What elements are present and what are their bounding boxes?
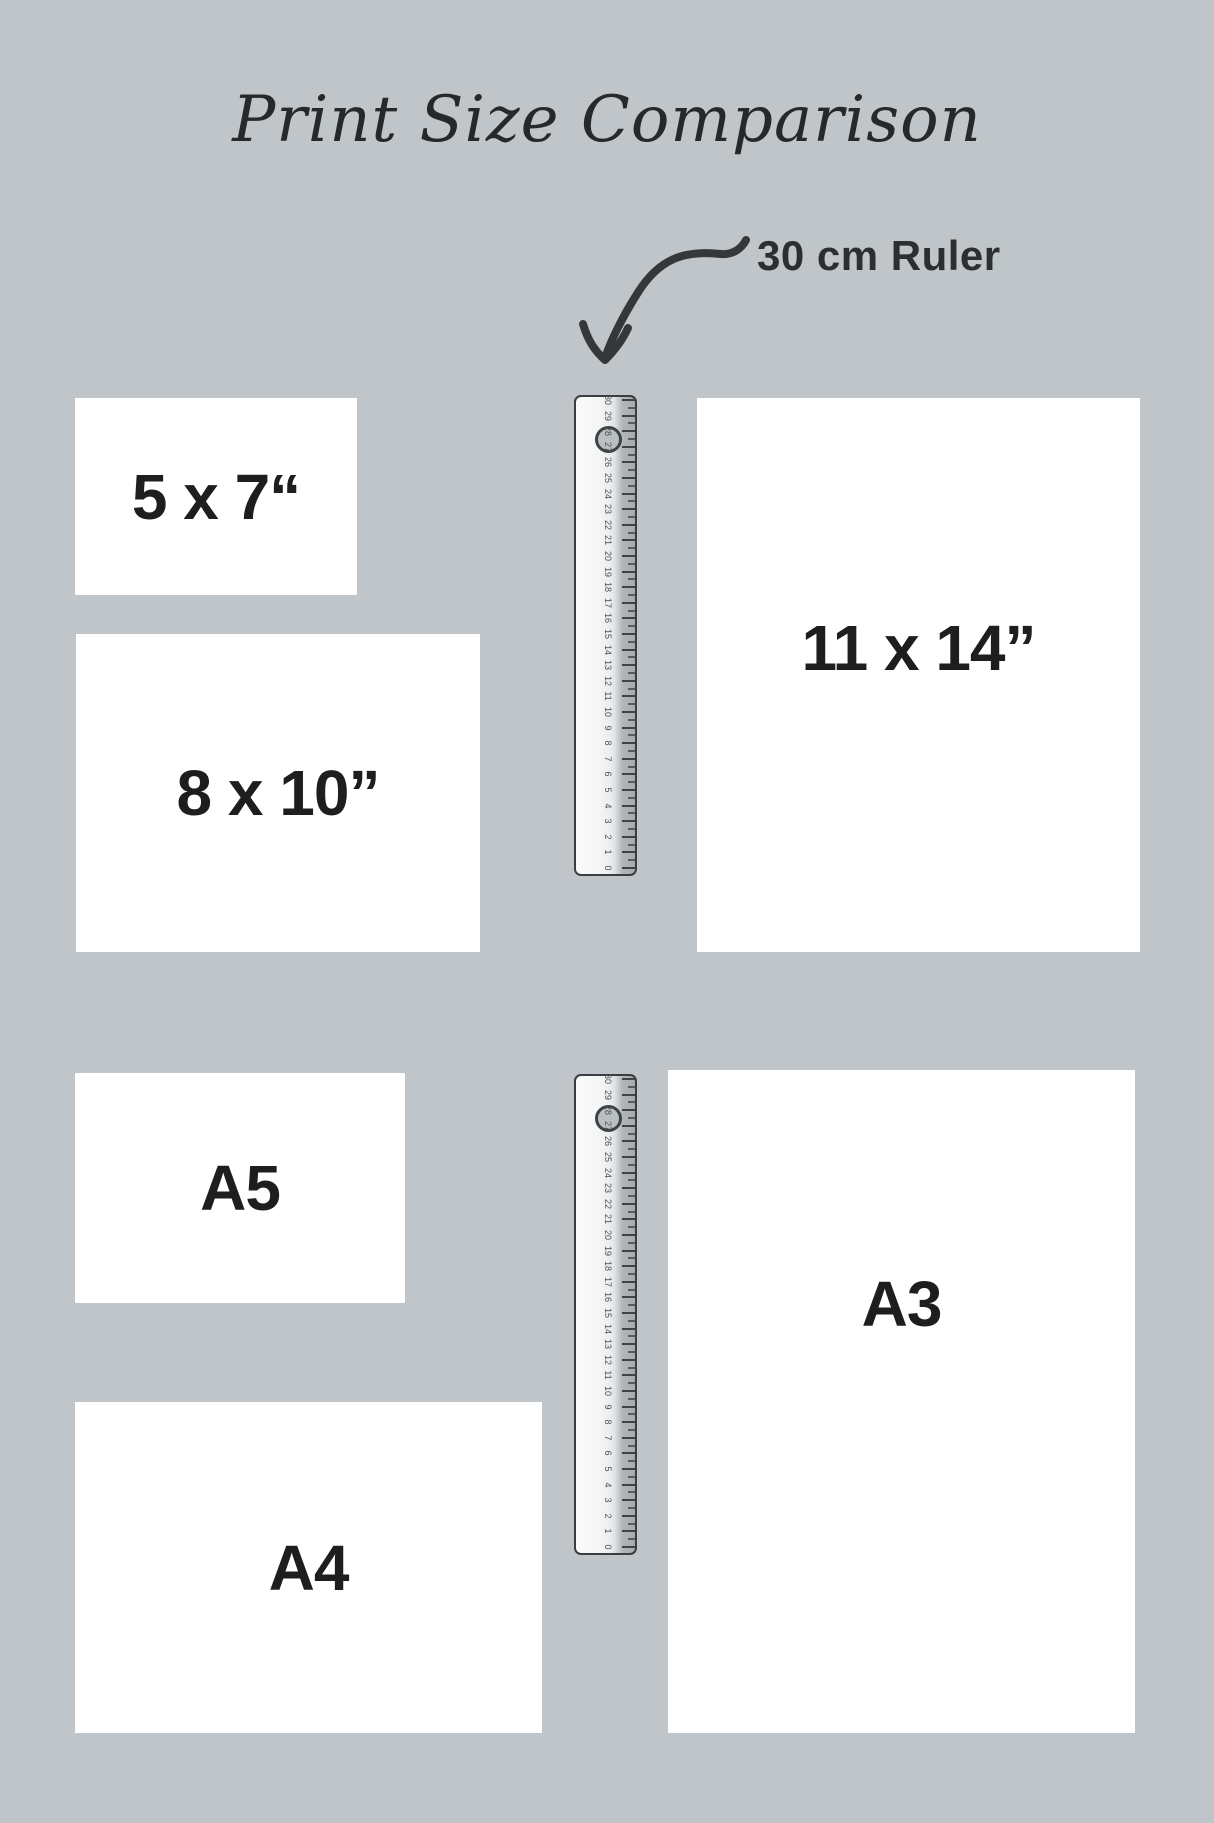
ruler-tick-halfcm [628, 1133, 635, 1135]
ruler-tick-cm [622, 758, 635, 760]
ruler-tick-number: 12 [603, 1352, 613, 1368]
ruler-tick-cm [622, 867, 635, 869]
ruler-tick-cm [622, 1452, 635, 1454]
ruler-tick-number: 21 [603, 532, 613, 548]
ruler-tick-number: 27 [603, 439, 613, 455]
ruler-tick-halfcm [628, 766, 635, 768]
ruler-tick-halfcm [628, 1538, 635, 1540]
ruler-tick-cm [622, 1296, 635, 1298]
ruler-tick-number: 25 [603, 470, 613, 486]
ruler-tick-cm [622, 1078, 635, 1080]
ruler-tick-halfcm [628, 1257, 635, 1259]
ruler-tick-halfcm [628, 438, 635, 440]
ruler-tick-halfcm [628, 1429, 635, 1431]
ruler-tick-halfcm [628, 1491, 635, 1493]
ruler-tick-halfcm [628, 500, 635, 502]
print-rect-5x7: 5 x 7“ [75, 398, 357, 595]
ruler-tick-cm [622, 1343, 635, 1345]
ruler-tick-cm [622, 524, 635, 526]
ruler-tick-number: 8 [603, 1414, 613, 1430]
ruler-tick-halfcm [628, 454, 635, 456]
ruler-tick-cm [622, 1421, 635, 1423]
ruler-tick-number: 15 [603, 1305, 613, 1321]
ruler-tick-number: 9 [603, 720, 613, 736]
ruler-tick-cm [622, 695, 635, 697]
ruler-tick-cm [622, 1484, 635, 1486]
ruler-tick-cm [622, 1468, 635, 1470]
ruler-tick-cm [622, 461, 635, 463]
ruler-tick-number: 9 [603, 1399, 613, 1415]
ruler-tick-cm [622, 649, 635, 651]
print-rect-a5: A5 [75, 1073, 405, 1303]
ruler-tick-cm [622, 1218, 635, 1220]
ruler-tick-cm [622, 571, 635, 573]
ruler-tick-halfcm [628, 750, 635, 752]
ruler-tick-cm [622, 836, 635, 838]
ruler-tick-halfcm [628, 1445, 635, 1447]
ruler-tick-number: 21 [603, 1211, 613, 1227]
ruler-tick-number: 23 [603, 1180, 613, 1196]
ruler-tick-number: 29 [603, 1087, 613, 1103]
ruler-tick-number: 17 [603, 595, 613, 611]
ruler-tick-halfcm [628, 1320, 635, 1322]
ruler-tick-halfcm [628, 625, 635, 627]
ruler-tick-number: 30 [603, 1071, 613, 1087]
ruler-tick-number: 22 [603, 517, 613, 533]
ruler-tick-cm [622, 727, 635, 729]
ruler-tick-cm [622, 789, 635, 791]
ruler-callout-label: 30 cm Ruler [757, 232, 1001, 280]
ruler-tick-halfcm [628, 859, 635, 861]
ruler-tick-cm [622, 1328, 635, 1330]
ruler-tick-halfcm [628, 578, 635, 580]
ruler-tick-cm [622, 586, 635, 588]
ruler-tick-cm [622, 820, 635, 822]
ruler-tick-number: 16 [603, 1289, 613, 1305]
ruler-30cm-top: 3029282726252423222120191817161514131211… [574, 395, 637, 876]
ruler-tick-number: 2 [603, 829, 613, 845]
print-size-label: 5 x 7“ [132, 460, 300, 534]
ruler-30cm-bottom: 3029282726252423222120191817161514131211… [574, 1074, 637, 1555]
ruler-tick-number: 19 [603, 1243, 613, 1259]
ruler-tick-number: 3 [603, 1492, 613, 1508]
ruler-tick-number: 7 [603, 1430, 613, 1446]
ruler-tick-cm [622, 805, 635, 807]
ruler-tick-number: 26 [603, 454, 613, 470]
print-size-comparison-infographic: Print Size Comparison 30 cm Ruler 5 x 7“… [0, 0, 1214, 1823]
ruler-tick-halfcm [628, 1101, 635, 1103]
ruler-tick-number: 14 [603, 1321, 613, 1337]
ruler-tick-halfcm [628, 656, 635, 658]
ruler-tick-cm [622, 399, 635, 401]
ruler-tick-halfcm [628, 1289, 635, 1291]
print-rect-a4: A4 [75, 1402, 542, 1733]
ruler-tick-cm [622, 680, 635, 682]
ruler-tick-number: 26 [603, 1133, 613, 1149]
ruler-tick-number: 4 [603, 1477, 613, 1493]
ruler-tick-cm [622, 1546, 635, 1548]
ruler-tick-number: 22 [603, 1196, 613, 1212]
ruler-tick-number: 28 [603, 423, 613, 439]
ruler-tick-number: 1 [603, 844, 613, 860]
ruler-tick-number: 11 [603, 1367, 613, 1383]
ruler-tick-cm [622, 633, 635, 635]
ruler-tick-cm [622, 477, 635, 479]
ruler-tick-number: 14 [603, 642, 613, 658]
ruler-tick-halfcm [628, 1460, 635, 1462]
print-size-label: A5 [200, 1151, 280, 1225]
ruler-tick-cm [622, 1109, 635, 1111]
ruler-tick-cm [622, 1094, 635, 1096]
ruler-tick-halfcm [628, 1195, 635, 1197]
ruler-tick-halfcm [628, 1086, 635, 1088]
ruler-tick-halfcm [628, 844, 635, 846]
ruler-tick-number: 10 [603, 704, 613, 720]
ruler-tick-number: 20 [603, 1227, 613, 1243]
ruler-tick-cm [622, 1172, 635, 1174]
ruler-tick-number: 6 [603, 766, 613, 782]
ruler-tick-number: 12 [603, 673, 613, 689]
ruler-tick-cm [622, 851, 635, 853]
ruler-tick-cm [622, 1234, 635, 1236]
ruler-tick-number: 6 [603, 1445, 613, 1461]
ruler-tick-halfcm [628, 1164, 635, 1166]
ruler-tick-cm [622, 1499, 635, 1501]
ruler-tick-halfcm [628, 641, 635, 643]
arrow-shaft [605, 240, 746, 358]
ruler-tick-number: 7 [603, 751, 613, 767]
ruler-tick-cm [622, 1156, 635, 1158]
ruler-tick-number: 8 [603, 735, 613, 751]
ruler-tick-halfcm [628, 828, 635, 830]
ruler-tick-halfcm [628, 610, 635, 612]
ruler-tick-halfcm [628, 1226, 635, 1228]
ruler-tick-halfcm [628, 1523, 635, 1525]
ruler-tick-halfcm [628, 1211, 635, 1213]
ruler-tick-cm [622, 1125, 635, 1127]
ruler-tick-number: 13 [603, 1336, 613, 1352]
ruler-tick-halfcm [628, 1507, 635, 1509]
ruler-tick-number: 3 [603, 813, 613, 829]
ruler-tick-cm [622, 1390, 635, 1392]
ruler-tick-number: 5 [603, 782, 613, 798]
print-size-label: 11 x 14” [802, 611, 1036, 685]
ruler-tick-halfcm [628, 781, 635, 783]
ruler-tick-halfcm [628, 563, 635, 565]
page-title: Print Size Comparison [0, 83, 1214, 157]
ruler-tick-halfcm [628, 812, 635, 814]
ruler-tick-halfcm [628, 734, 635, 736]
ruler-tick-number: 11 [603, 688, 613, 704]
ruler-tick-cm [622, 1187, 635, 1189]
ruler-tick-cm [622, 555, 635, 557]
ruler-tick-halfcm [628, 1242, 635, 1244]
ruler-tick-cm [622, 1281, 635, 1283]
ruler-tick-number: 20 [603, 548, 613, 564]
ruler-tick-halfcm [628, 1273, 635, 1275]
ruler-tick-cm [622, 711, 635, 713]
ruler-tick-cm [622, 1530, 635, 1532]
ruler-tick-number: 23 [603, 501, 613, 517]
ruler-tick-halfcm [628, 688, 635, 690]
ruler-tick-number: 13 [603, 657, 613, 673]
ruler-tick-number: 30 [603, 392, 613, 408]
ruler-tick-halfcm [628, 1335, 635, 1337]
ruler-tick-cm [622, 742, 635, 744]
print-rect-8x10: 8 x 10” [76, 634, 480, 952]
ruler-tick-number: 0 [603, 1539, 613, 1555]
ruler-tick-cm [622, 1203, 635, 1205]
ruler-tick-halfcm [628, 422, 635, 424]
ruler-tick-halfcm [628, 1179, 635, 1181]
ruler-tick-number: 18 [603, 1258, 613, 1274]
ruler-tick-cm [622, 1515, 635, 1517]
ruler-tick-cm [622, 508, 635, 510]
ruler-tick-number: 24 [603, 486, 613, 502]
ruler-tick-cm [622, 617, 635, 619]
curved-arrow-icon [555, 192, 765, 382]
ruler-tick-number: 0 [603, 860, 613, 876]
ruler-tick-cm [622, 1437, 635, 1439]
ruler-tick-cm [622, 493, 635, 495]
ruler-tick-number: 27 [603, 1118, 613, 1134]
print-size-label: A4 [269, 1531, 349, 1605]
ruler-tick-number: 16 [603, 610, 613, 626]
ruler-tick-halfcm [628, 703, 635, 705]
print-rect-a3: A3 [668, 1070, 1135, 1733]
ruler-tick-halfcm [628, 547, 635, 549]
ruler-tick-cm [622, 1374, 635, 1376]
ruler-tick-halfcm [628, 797, 635, 799]
ruler-tick-halfcm [628, 719, 635, 721]
ruler-tick-number: 4 [603, 798, 613, 814]
ruler-tick-cm [622, 415, 635, 417]
ruler-tick-cm [622, 1406, 635, 1408]
ruler-tick-halfcm [628, 485, 635, 487]
ruler-tick-halfcm [628, 1382, 635, 1384]
print-size-label: A3 [862, 1267, 942, 1341]
ruler-tick-halfcm [628, 594, 635, 596]
ruler-tick-halfcm [628, 1476, 635, 1478]
ruler-tick-halfcm [628, 1413, 635, 1415]
ruler-tick-halfcm [628, 1117, 635, 1119]
ruler-tick-cm [622, 664, 635, 666]
ruler-tick-halfcm [628, 1351, 635, 1353]
ruler-tick-number: 2 [603, 1508, 613, 1524]
ruler-tick-number: 1 [603, 1523, 613, 1539]
ruler-tick-number: 17 [603, 1274, 613, 1290]
ruler-tick-cm [622, 430, 635, 432]
ruler-tick-number: 28 [603, 1102, 613, 1118]
ruler-tick-number: 18 [603, 579, 613, 595]
ruler-tick-cm [622, 1265, 635, 1267]
ruler-tick-halfcm [628, 672, 635, 674]
ruler-tick-number: 19 [603, 564, 613, 580]
ruler-tick-halfcm [628, 1398, 635, 1400]
ruler-tick-cm [622, 1312, 635, 1314]
ruler-tick-cm [622, 1250, 635, 1252]
ruler-tick-number: 10 [603, 1383, 613, 1399]
ruler-tick-number: 24 [603, 1165, 613, 1181]
ruler-tick-cm [622, 1359, 635, 1361]
ruler-tick-halfcm [628, 469, 635, 471]
ruler-tick-cm [622, 446, 635, 448]
print-size-label: 8 x 10” [177, 756, 380, 830]
ruler-tick-number: 29 [603, 408, 613, 424]
ruler-tick-cm [622, 602, 635, 604]
ruler-tick-halfcm [628, 407, 635, 409]
ruler-tick-halfcm [628, 516, 635, 518]
ruler-tick-cm [622, 539, 635, 541]
ruler-tick-cm [622, 773, 635, 775]
ruler-tick-number: 15 [603, 626, 613, 642]
print-rect-11x14: 11 x 14” [697, 398, 1140, 952]
ruler-tick-cm [622, 1140, 635, 1142]
ruler-tick-number: 25 [603, 1149, 613, 1165]
ruler-tick-halfcm [628, 1367, 635, 1369]
ruler-tick-halfcm [628, 1304, 635, 1306]
ruler-tick-halfcm [628, 532, 635, 534]
ruler-tick-halfcm [628, 1148, 635, 1150]
ruler-tick-number: 5 [603, 1461, 613, 1477]
